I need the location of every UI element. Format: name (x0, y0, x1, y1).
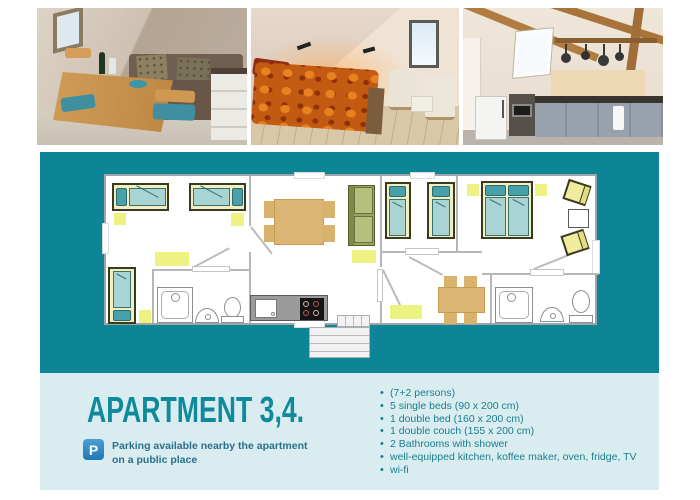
shower-head (507, 293, 516, 302)
hanging-pan (581, 51, 590, 60)
dining-chair (444, 313, 457, 324)
bullet-icon: • (380, 438, 390, 451)
details-panel: APARTMENT 3,4. P Parking available nearb… (40, 373, 659, 490)
pillow (389, 186, 406, 197)
shower (157, 287, 193, 323)
single-bed (108, 267, 136, 324)
nightstand (114, 213, 126, 225)
apartment-flyer: APARTMENT 3,4. P Parking available nearb… (0, 0, 700, 500)
towel (613, 106, 624, 130)
wall (152, 269, 192, 271)
sink (540, 307, 564, 322)
side-table (411, 96, 433, 112)
wall (380, 302, 382, 323)
toilet (224, 297, 241, 318)
window-tab (410, 172, 435, 179)
window (409, 20, 439, 68)
pillow (508, 185, 529, 196)
sink (195, 308, 219, 323)
feature-list: •(7+2 persons)•5 single beds (90 x 200 c… (380, 387, 637, 477)
parking-icon: P (83, 439, 104, 460)
feature-item: •well-equipped kitchen, koffee maker, ov… (380, 451, 637, 464)
mattress (389, 199, 406, 236)
toilet-base (221, 316, 244, 323)
oven-window (512, 104, 532, 117)
photo-kitchen (463, 8, 663, 145)
feature-item: •2 Bathrooms with shower (380, 438, 637, 451)
apartment-title: APARTMENT 3,4. (87, 389, 304, 431)
feature-item: •5 single beds (90 x 200 cm) (380, 400, 637, 413)
pillow (432, 186, 450, 197)
wall (230, 269, 249, 271)
single-bed (385, 182, 411, 239)
stairs (309, 327, 370, 358)
door-swing (194, 247, 230, 268)
burner (303, 310, 309, 316)
bullet-icon: • (380, 400, 390, 413)
armchair (560, 229, 589, 256)
feature-item: •1 double bed (160 x 200 cm) (380, 413, 637, 426)
pillow (485, 185, 506, 196)
skylight-window (513, 28, 553, 78)
kitchen-sink-drain (271, 312, 275, 316)
door-swing (409, 256, 443, 276)
couch (348, 185, 375, 246)
mattress (508, 197, 529, 236)
wall (564, 273, 599, 275)
feature-item: •wi-fi (380, 464, 637, 477)
bullet-icon: • (380, 425, 390, 438)
skylight-window (53, 8, 83, 54)
bullet-icon: • (380, 464, 390, 477)
burner (313, 301, 319, 307)
stove (300, 298, 324, 320)
window-tab (592, 240, 600, 274)
side-table (568, 209, 589, 228)
hanging-pan (615, 52, 624, 61)
door-sill (405, 248, 439, 255)
dining-chair (322, 201, 335, 218)
single-bed (427, 182, 455, 239)
bowl (129, 80, 147, 88)
dining-chair (464, 313, 477, 324)
dining-chair (444, 276, 457, 287)
mattress (113, 271, 131, 308)
window-tab (294, 172, 325, 179)
sofa-pillow (176, 57, 209, 83)
hanging-pan (561, 53, 571, 63)
toilet (572, 290, 590, 313)
dresser (211, 68, 247, 140)
utensil-rail (555, 38, 657, 43)
photo-bedroom (251, 8, 459, 145)
nightstand (467, 184, 479, 196)
rug (390, 305, 422, 319)
toilet-base (569, 315, 593, 323)
dining-chair (322, 225, 335, 242)
burner (313, 310, 319, 316)
kitchen-counter (250, 295, 328, 321)
wall (456, 176, 458, 251)
door-sill (192, 266, 230, 272)
nightstand (139, 310, 151, 323)
armchair (562, 179, 591, 206)
dining-table (438, 287, 485, 313)
feature-item: •(7+2 persons) (380, 387, 637, 400)
pillow (113, 310, 131, 321)
dining-chair (464, 276, 477, 287)
burner (303, 301, 309, 307)
fridge-handle (502, 100, 504, 118)
door-sill (377, 269, 383, 302)
wall (490, 273, 492, 323)
bullet-icon: • (380, 387, 390, 400)
wall (249, 176, 251, 226)
single-bed (112, 183, 169, 211)
parking-note-text: Parking available nearby the apartment o… (112, 439, 308, 467)
door-swing (382, 270, 401, 306)
wall (439, 251, 482, 253)
floor-plan-section (40, 152, 659, 373)
nightstand (535, 184, 547, 196)
pillow (116, 188, 127, 206)
glass (109, 58, 116, 74)
countertop (535, 96, 663, 103)
rug (155, 252, 189, 266)
mattress (432, 199, 450, 236)
parking-note: P Parking available nearby the apartment… (83, 439, 308, 467)
mattress (485, 197, 506, 236)
wall (152, 269, 154, 323)
window-tab (102, 223, 109, 254)
rug (352, 250, 376, 263)
backsplash (551, 70, 645, 98)
wall (380, 251, 407, 253)
photo-living-room (37, 8, 247, 145)
cabinets (535, 103, 663, 137)
single-bed (189, 183, 246, 211)
chair-cushion (153, 103, 196, 120)
mattress (193, 188, 230, 206)
sofa-pillow (136, 54, 168, 81)
hanging-pan (598, 55, 609, 66)
chair-back (155, 89, 196, 103)
pillow (232, 188, 243, 206)
bed-frame (365, 87, 384, 134)
bullet-icon: • (380, 451, 390, 464)
shower (495, 287, 533, 323)
chair-back (65, 48, 91, 58)
wine-bottle (99, 52, 105, 74)
bullet-icon: • (380, 413, 390, 426)
dining-table (274, 199, 324, 245)
floor-plan (104, 174, 597, 325)
double-bed (481, 181, 533, 239)
couch-cushion (354, 216, 373, 243)
feature-item: •1 double couch (155 x 200 cm) (380, 425, 637, 438)
stairs (337, 315, 370, 327)
shower-head (171, 293, 180, 302)
mattress (129, 188, 166, 206)
nightstand (231, 213, 244, 226)
wall (380, 176, 382, 267)
double-bed-duvet (251, 62, 379, 132)
door-sill (530, 269, 564, 276)
couch-cushion (354, 187, 373, 214)
